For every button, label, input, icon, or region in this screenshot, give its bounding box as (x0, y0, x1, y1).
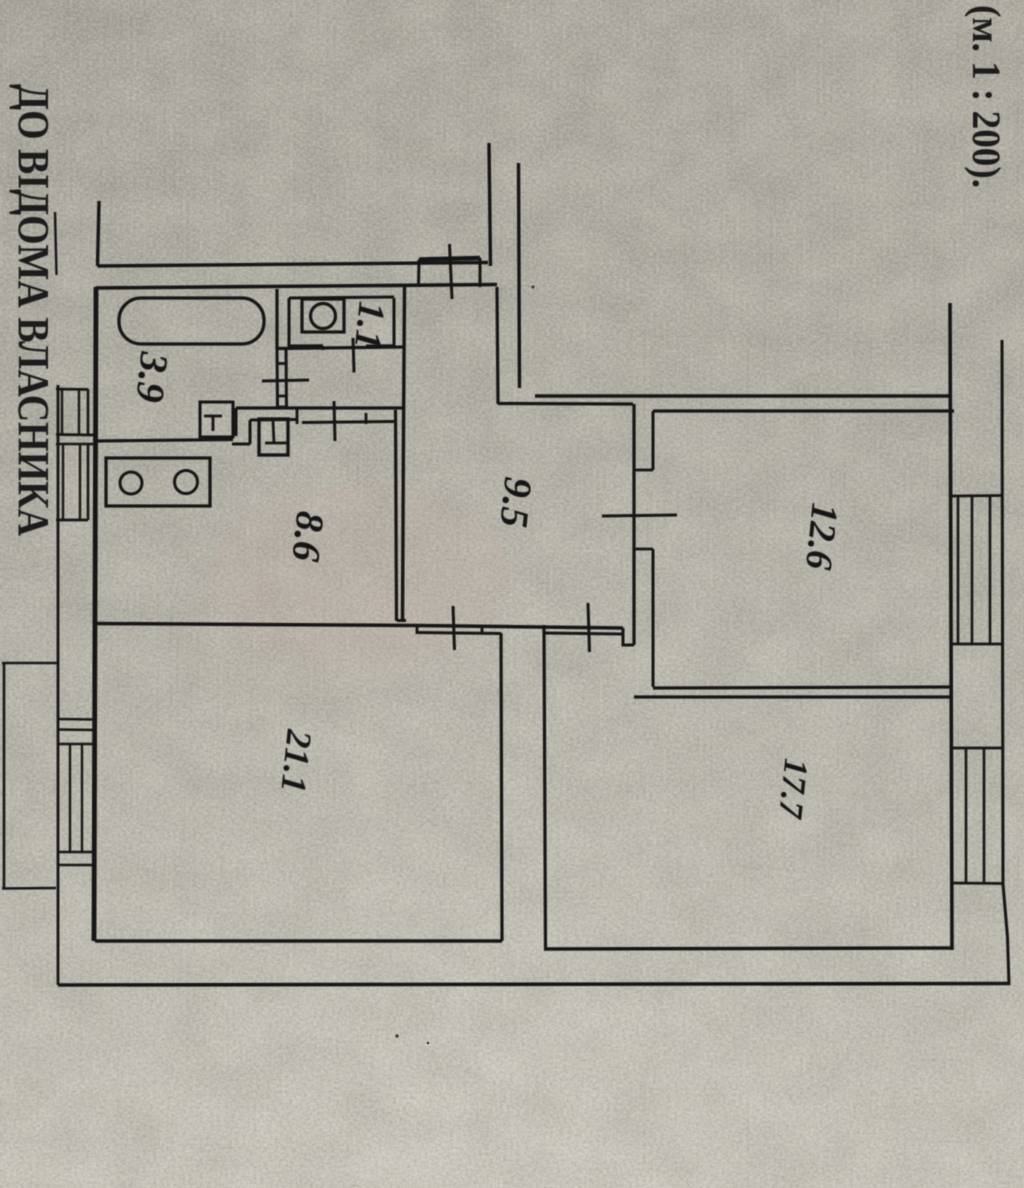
svg-text:12.6: 12.6 (797, 501, 846, 572)
svg-text:(м. 1 : 200).: (м. 1 : 200). (964, 5, 1009, 188)
svg-text:17.7: 17.7 (771, 757, 814, 822)
svg-text:3.9: 3.9 (127, 349, 177, 404)
svg-text:1.1: 1.1 (346, 300, 393, 352)
svg-text:8.6: 8.6 (283, 509, 333, 563)
svg-text:21.1: 21.1 (274, 727, 320, 795)
svg-text:ДО ВІДОМА ВЛАСНИКА: ДО ВІДОМА ВЛАСНИКА (9, 84, 58, 536)
svg-text:9.5: 9.5 (491, 475, 541, 529)
